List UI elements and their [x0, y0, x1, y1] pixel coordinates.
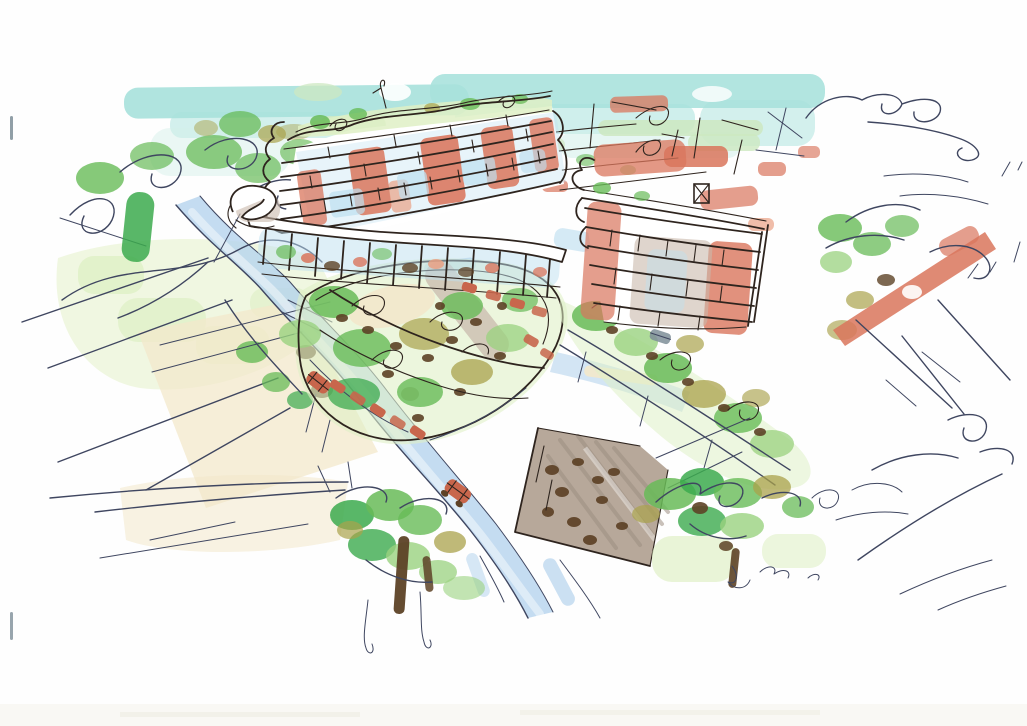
sketch-page [0, 0, 1027, 726]
east-building [572, 130, 774, 335]
right-side-scribbles [818, 205, 1020, 610]
sketch-canvas [0, 0, 1027, 726]
top-right-scribbles [806, 94, 1022, 204]
bottom-right-tree-cluster [632, 468, 908, 588]
